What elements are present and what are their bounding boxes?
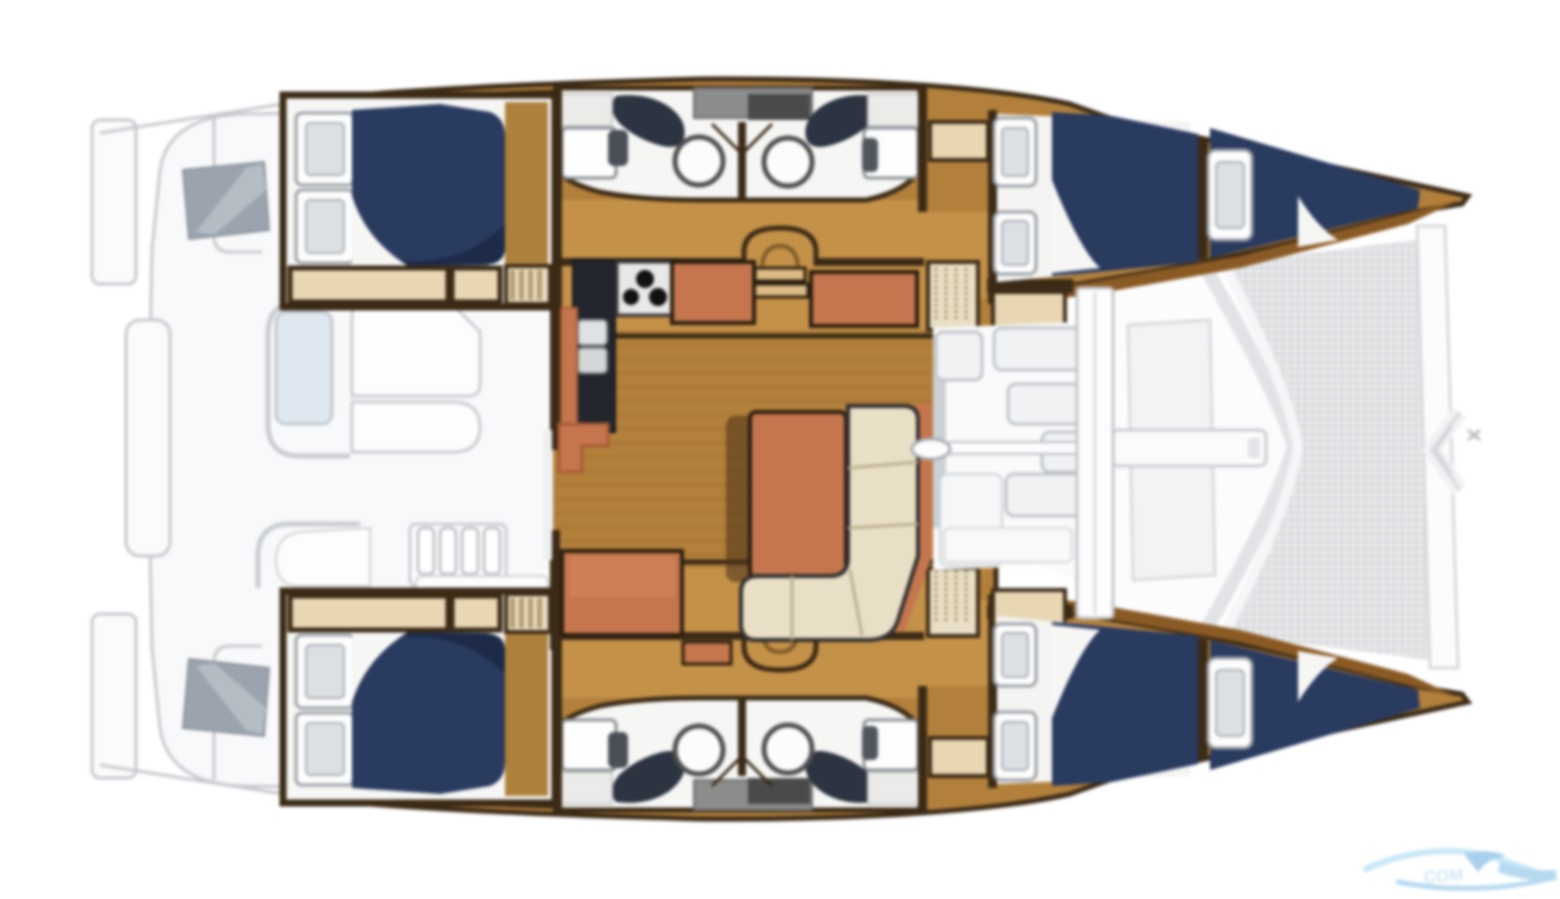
svg-text:COM: COM — [1423, 865, 1464, 887]
